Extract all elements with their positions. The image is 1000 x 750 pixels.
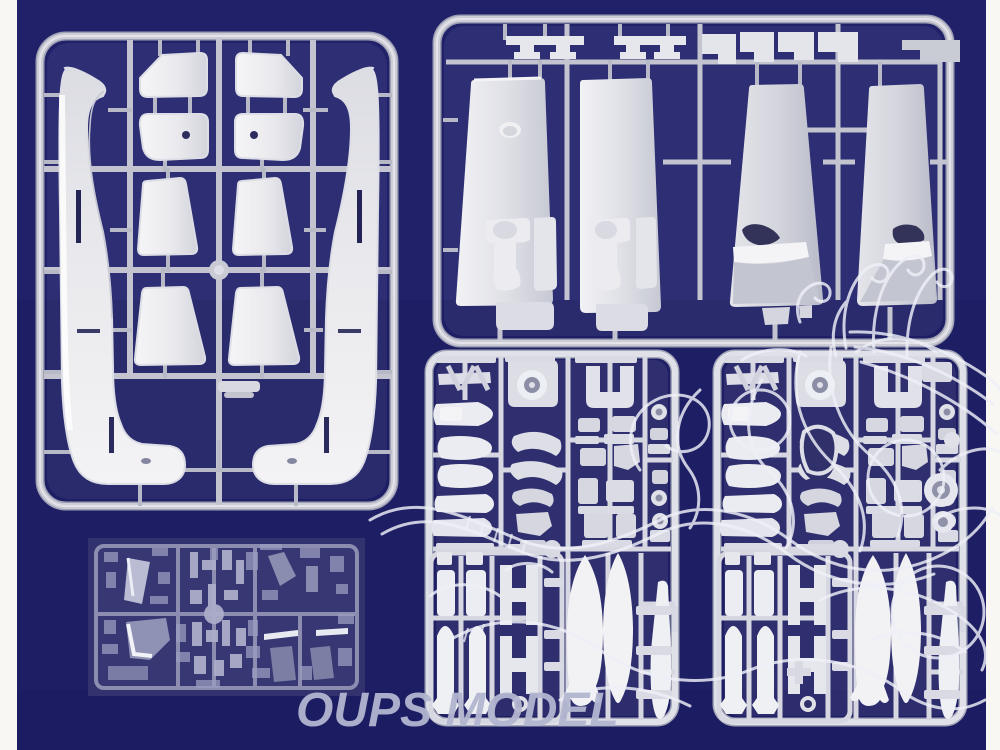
svg-text:OUPS MODEL: OUPS MODEL — [296, 684, 619, 737]
